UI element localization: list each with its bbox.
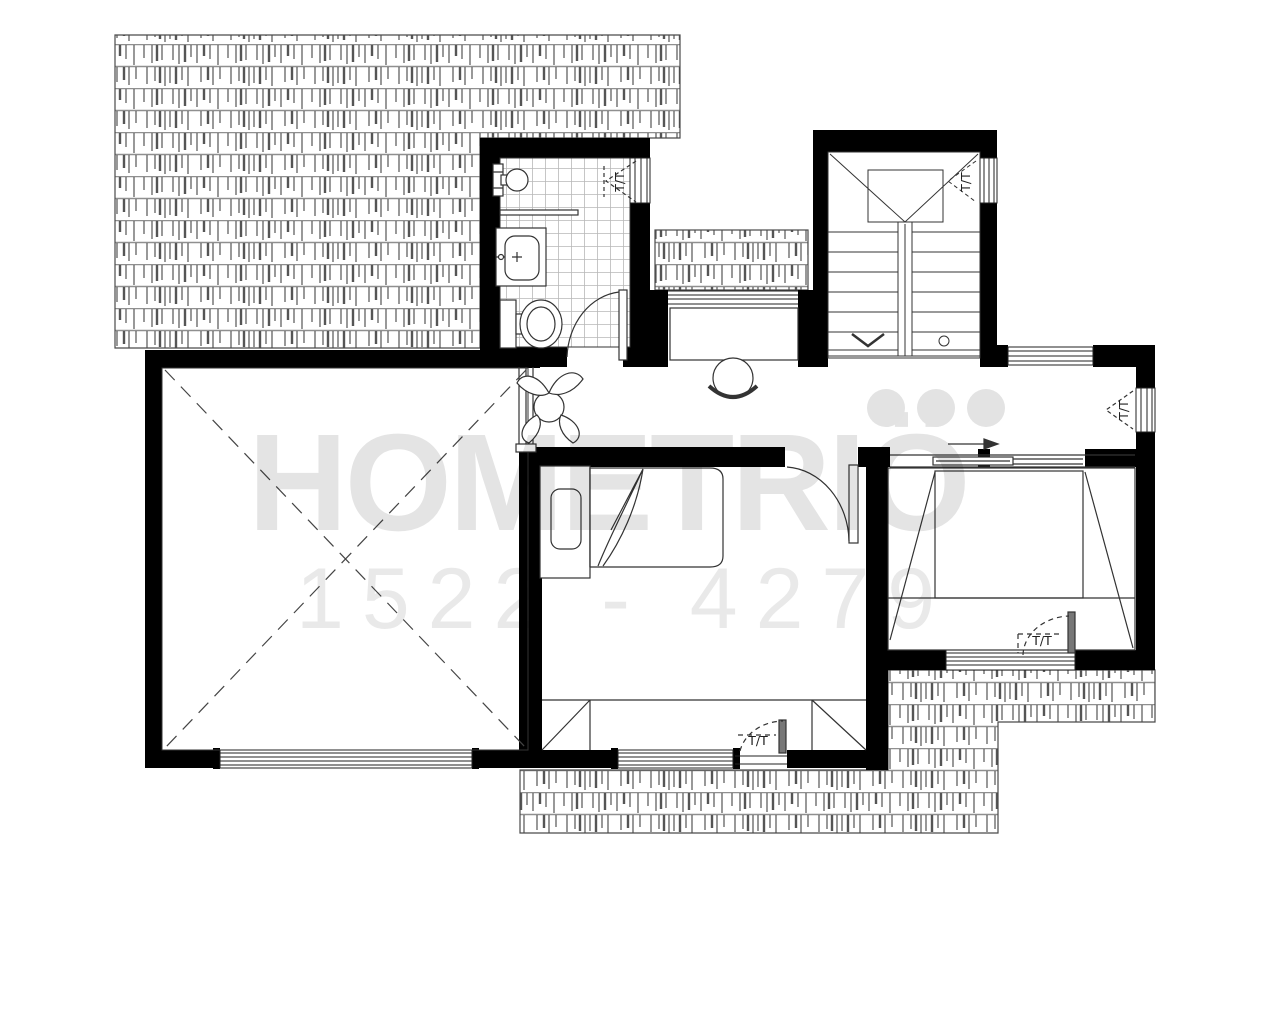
roof-dormer-middle xyxy=(655,230,808,290)
void-cross xyxy=(165,370,526,748)
bedroom-middle xyxy=(540,465,866,753)
shelf-symbol xyxy=(500,210,578,215)
chair xyxy=(709,358,757,398)
plant-symbol xyxy=(517,373,583,443)
bedroom-right xyxy=(888,439,1135,655)
label-bathroom-window: T/T xyxy=(612,172,627,193)
label-bedroom-middle-window: T/T xyxy=(747,733,768,748)
floor-plan-drawing: T/T T/T T/T T/T T/T xyxy=(0,0,1280,1024)
toilet-symbol xyxy=(500,300,562,348)
desk xyxy=(670,308,798,360)
stair-direction-arrow xyxy=(852,334,884,346)
label-hall-window: T/T xyxy=(1116,400,1131,421)
knee-wall-band xyxy=(542,700,866,750)
label-bedroom-right-window: T/T xyxy=(1031,633,1052,648)
sink-symbol xyxy=(496,228,546,286)
label-stair-window: T/T xyxy=(958,172,973,193)
floor-plan-canvas: T/T T/T T/T T/T T/T HOMETRIÖ 1522 - 4279 xyxy=(0,0,1280,1024)
bedroom-middle-door xyxy=(787,465,858,543)
bed-middle xyxy=(540,466,723,578)
void-room xyxy=(165,370,526,748)
bed-right xyxy=(888,468,1135,650)
